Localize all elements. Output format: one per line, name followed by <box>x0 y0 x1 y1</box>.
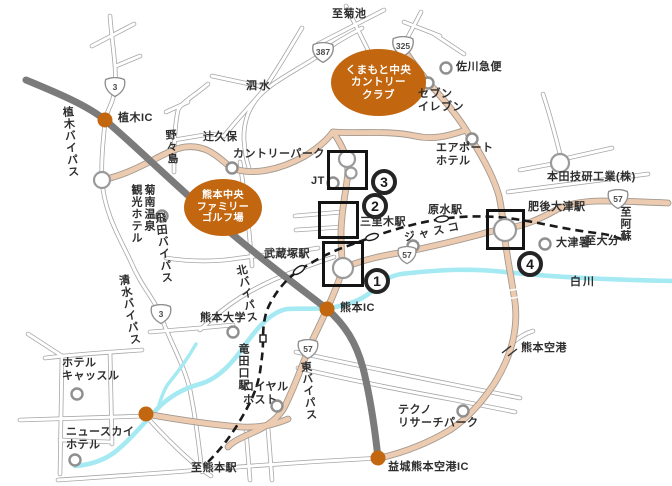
label-new-sky-hotel: ニュースカイ ホテル <box>66 426 134 452</box>
ic-marker-ueki <box>98 113 113 128</box>
label-dest-aso: 至阿蘇 <box>618 206 631 242</box>
highlight-box-4 <box>486 209 525 250</box>
label-country-park: カントリーパーク <box>233 148 325 161</box>
svg-text:3: 3 <box>113 82 118 92</box>
svg-text:3: 3 <box>159 309 164 319</box>
poi-marker-sagawa <box>441 63 452 74</box>
label-sagawa: 佐川急便 <box>456 61 502 74</box>
svg-text:387: 387 <box>316 47 330 57</box>
label-dest-kikuchi: 至菊池 <box>332 8 367 21</box>
svg-text:325: 325 <box>396 41 410 51</box>
number-badge-1: 1 <box>364 268 390 294</box>
highlight-box-1 <box>322 241 364 287</box>
poi-marker-kumamoto-univ <box>228 327 239 338</box>
route-shield-57-mid: 57 <box>398 247 416 264</box>
label-honda: 本田技研工業(株) <box>547 171 636 184</box>
ellipse-line: ファミリー <box>197 202 250 214</box>
label-haramizu-station: 原水駅 <box>428 204 463 217</box>
label-dest-oita: 至大分 <box>585 235 620 248</box>
ellipse-line: くまもと中央 <box>346 64 412 76</box>
ellipse-line: ゴルフ場 <box>202 213 244 225</box>
poi-marker-hotel-castle <box>72 389 83 400</box>
label-royal-host: ロイヤル ホスト <box>243 381 289 407</box>
label-dest-kumamoto-station: 至熊本駅 <box>191 462 237 475</box>
label-higo-ozu-station: 肥後大津駅 <box>528 201 586 214</box>
label-shisui: 泗水 <box>246 80 272 93</box>
highlight-box-2 <box>318 201 359 239</box>
ellipse-line: 熊本中央 <box>202 190 244 202</box>
label-nonoshima: 野々島 <box>163 129 178 166</box>
poi-marker-ozu-police <box>540 239 551 250</box>
label-jt: JT <box>311 175 325 188</box>
ellipse-line: カントリー <box>351 76 406 88</box>
label-kikunan-hotel: 菊南温泉 観光ホテル <box>129 184 155 244</box>
route-shield-3-north: 3 <box>105 78 125 97</box>
svg-text:57: 57 <box>303 344 313 354</box>
label-kumamoto-airport: 熊本空港 <box>521 342 567 355</box>
highlight-box-3 <box>327 150 368 190</box>
svg-text:57: 57 <box>402 250 412 260</box>
label-tsujikubo: 辻久保 <box>203 131 238 144</box>
label-kumamoto-ic: 熊本IC <box>340 302 375 315</box>
label-hotel-castle: ホテル キャッスル <box>62 357 120 383</box>
label-kumamoto-univ: 熊本大学 <box>200 312 246 325</box>
label-shirakawa: 白川 <box>570 276 596 289</box>
kumamoto-chuo-family-golf-ellipse: 熊本中央 ファミリー ゴルフ場 <box>184 179 262 236</box>
poi-marker-new-sky-hotel <box>70 455 81 466</box>
label-musashizuka-station: 武蔵塚駅 <box>264 248 310 261</box>
number-badge-3: 3 <box>371 169 397 195</box>
label-airport-hotel: エアポート ホテル <box>436 142 494 168</box>
label-seven-eleven: セブン イレブン <box>418 88 464 114</box>
label-sanrigi-station: 三里木駅 <box>360 216 406 229</box>
ic-marker-kumamoto <box>320 302 335 317</box>
label-ueki-ic: 植木IC <box>118 112 153 125</box>
route-shield-3-south: 3 <box>151 305 171 324</box>
label-mashiki-ic: 益城熊本空港IC <box>388 461 469 474</box>
access-map: 3 387 325 3 57 57 57 くまもと中央 カントリー クラブ 熊本… <box>0 0 672 486</box>
svg-text:57: 57 <box>613 194 623 204</box>
label-techno-research: テクノ リサーチパーク <box>398 404 479 430</box>
number-badge-4: 4 <box>517 251 543 277</box>
ic-marker-west <box>139 407 154 422</box>
poi-marker-country-park <box>227 163 238 174</box>
ellipse-line: クラブ <box>362 89 395 101</box>
kumamoto-chuo-country-club-ellipse: くまもと中央 カントリー クラブ <box>331 49 426 116</box>
ic-marker-mashiki <box>371 451 386 466</box>
